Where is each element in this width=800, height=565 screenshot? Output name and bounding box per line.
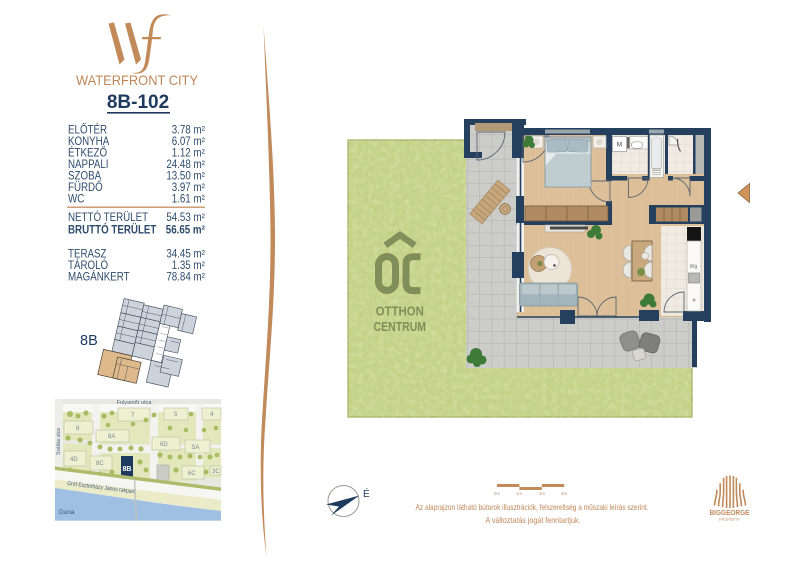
svg-text:WC: WC <box>68 193 85 206</box>
svg-text:M: M <box>617 142 622 149</box>
svg-text:A változtatás jogát fenntartju: A változtatás jogát fenntartjuk. <box>486 515 581 525</box>
svg-text:5A: 5A <box>192 445 199 451</box>
svg-text:6C: 6C <box>188 471 196 477</box>
svg-text:WATERFRONT CITY: WATERFRONT CITY <box>76 72 199 88</box>
svg-text:54.53 m²: 54.53 m² <box>166 211 205 224</box>
svg-text:Wg: Wg <box>690 264 698 270</box>
svg-text:Az alaprajzon látható bútorok: Az alaprajzon látható bútorok illusztrác… <box>416 502 649 512</box>
svg-text:CENTRUM: CENTRUM <box>374 320 427 334</box>
svg-text:PROPERTY: PROPERTY <box>719 517 740 522</box>
svg-text:8C: 8C <box>96 461 104 467</box>
svg-text:Duna: Duna <box>59 509 75 516</box>
svg-text:0m: 0m <box>494 491 501 496</box>
svg-text:É: É <box>363 487 370 500</box>
svg-text:BRUTTÓ TERÜLET: BRUTTÓ TERÜLET <box>68 223 157 237</box>
svg-text:MAGÁNKERT: MAGÁNKERT <box>68 270 130 284</box>
svg-text:78.84 m²: 78.84 m² <box>166 271 205 284</box>
svg-text:6D: 6D <box>160 442 168 448</box>
svg-text:2m: 2m <box>539 491 546 496</box>
svg-text:8B: 8B <box>123 466 132 473</box>
svg-text:OTTHON: OTTHON <box>376 305 424 319</box>
svg-text:Folyamőr utca: Folyamőr utca <box>117 400 153 406</box>
svg-text:8B: 8B <box>80 333 98 349</box>
svg-text:Szállás utca: Szállás utca <box>56 428 62 455</box>
svg-text:8A: 8A <box>108 434 115 440</box>
svg-text:3m: 3m <box>561 491 568 496</box>
svg-text:BIGGEORGE: BIGGEORGE <box>710 510 750 517</box>
svg-text:NETTÓ TERÜLET: NETTÓ TERÜLET <box>68 210 149 224</box>
svg-text:1.61 m²: 1.61 m² <box>172 193 206 206</box>
svg-text:56.65 m²: 56.65 m² <box>166 224 205 237</box>
svg-text:3C: 3C <box>212 469 220 475</box>
svg-text:1m: 1m <box>516 491 523 496</box>
svg-text:8B-102: 8B-102 <box>107 92 169 113</box>
svg-text:4D: 4D <box>70 457 78 463</box>
